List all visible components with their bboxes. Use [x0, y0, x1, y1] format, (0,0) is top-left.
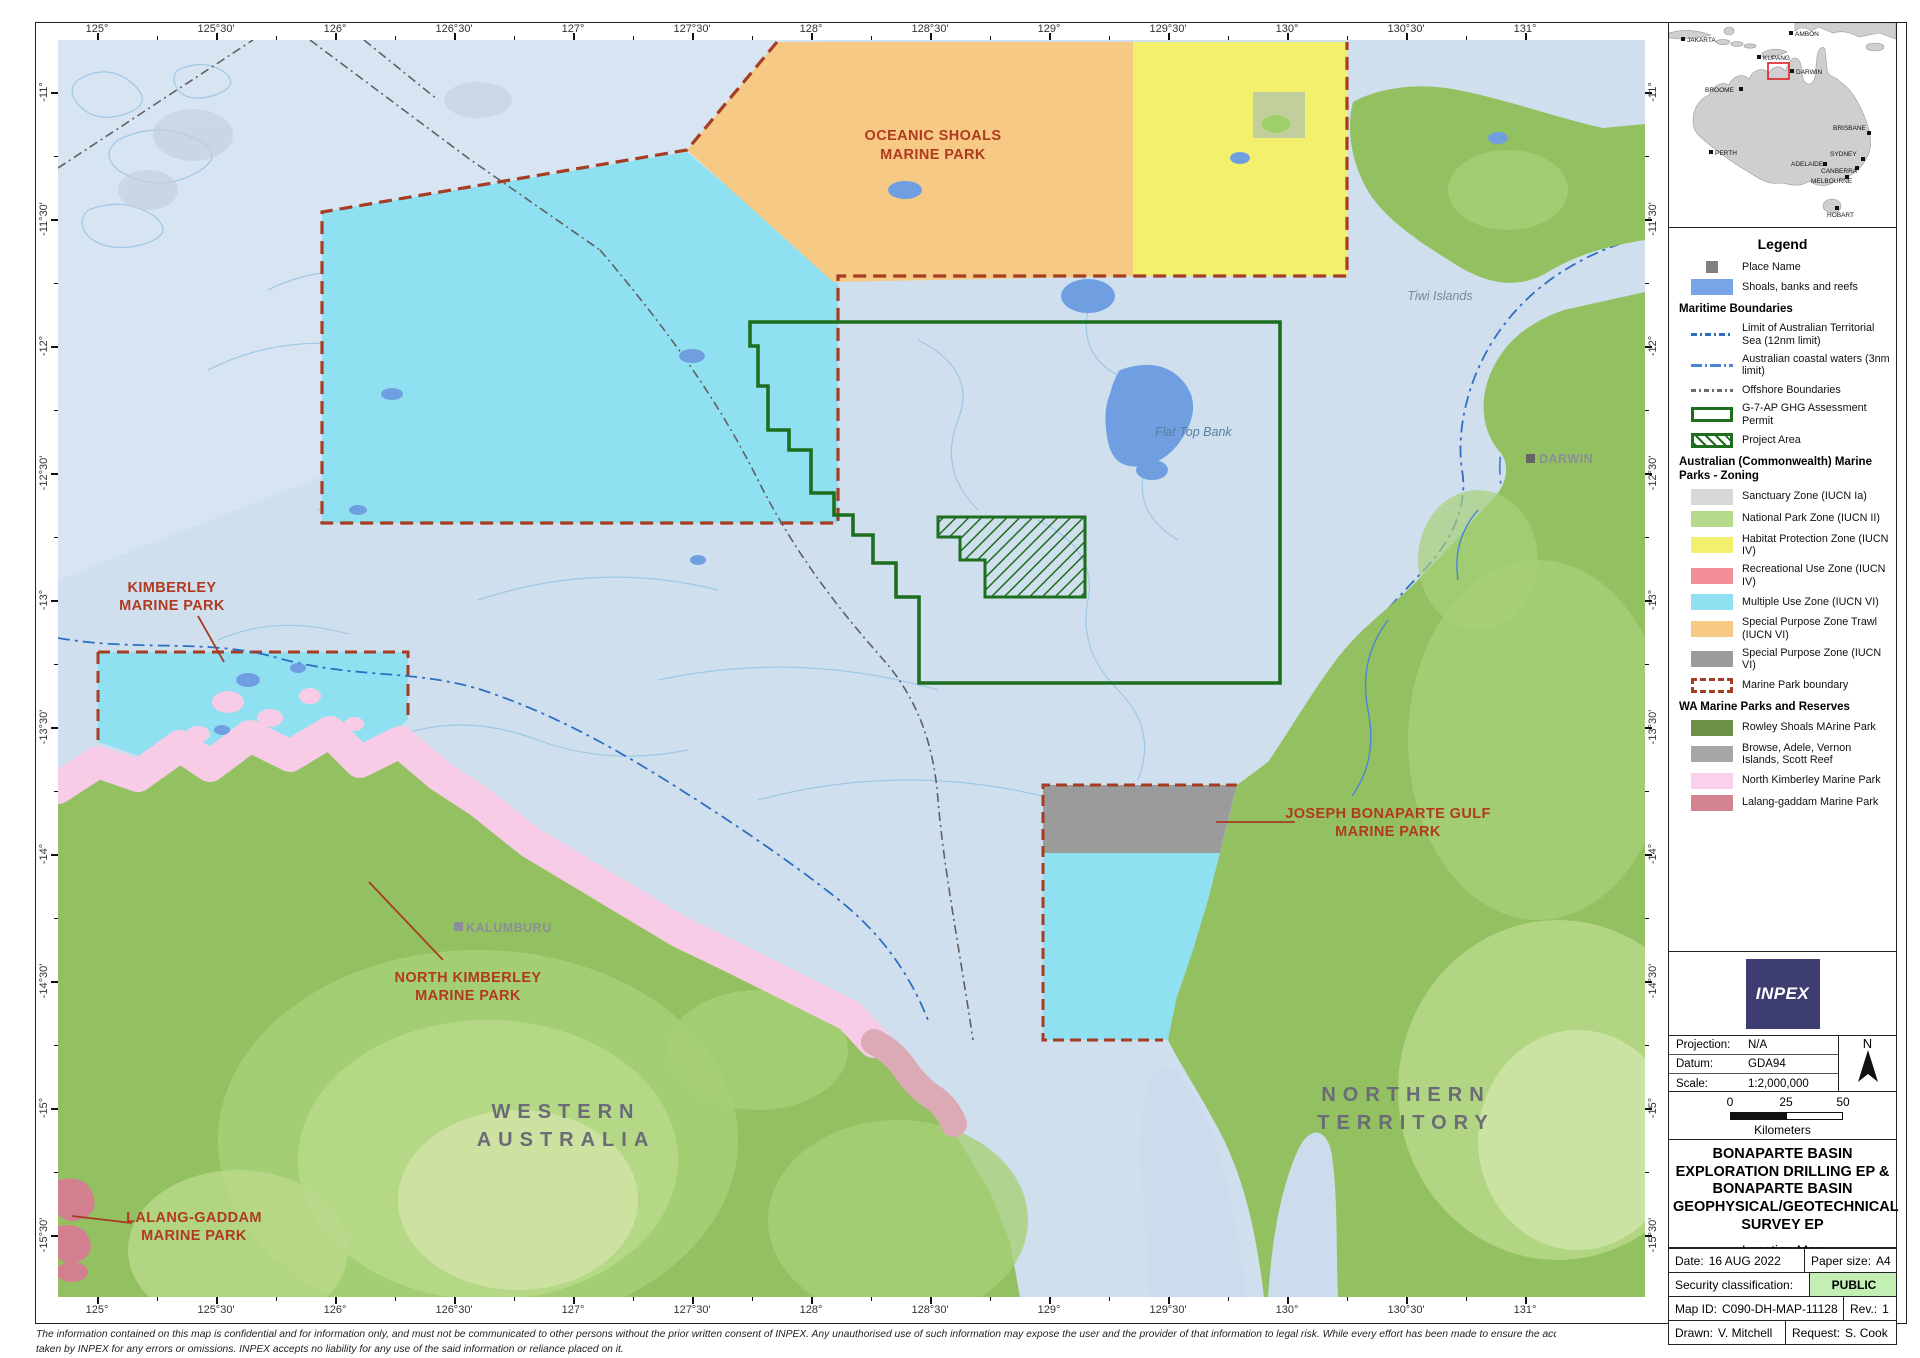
svg-text:BROOME: BROOME [1705, 87, 1735, 94]
legend-swatch-line [1691, 364, 1733, 367]
legend-item: Special Purpose Zone Trawl (IUCN VI) [1669, 613, 1896, 644]
legend-swatch-national-park [1691, 511, 1733, 527]
oceanic-shoals-label: OCEANIC SHOALS [865, 128, 1002, 144]
legend-swatch-lg [1691, 795, 1733, 811]
scalebar-25: 25 [1779, 1095, 1792, 1109]
svg-text:AMBON: AMBON [1795, 31, 1819, 38]
map-sheet: OCEANIC SHOALS MARINE PARK KIMBERLEY MAR… [0, 0, 1920, 1358]
legend-item: Shoals, banks and reefs [1669, 276, 1896, 298]
darwin-marker [1526, 454, 1535, 463]
svg-text:CANBERRA: CANBERRA [1821, 168, 1858, 175]
legend-item: Special Purpose Zone (IUCN VI) [1669, 644, 1896, 675]
legend-item: Multiple Use Zone (IUCN VI) [1669, 591, 1896, 613]
kimberley-label: KIMBERLEY [128, 580, 217, 596]
drawn-row: Drawn:V. Mitchell Request:S. Cook [1668, 1320, 1897, 1345]
legend-item-label: Shoals, banks and reefs [1742, 281, 1858, 293]
legend-swatch-permit [1691, 407, 1733, 422]
legend-item-label: Sanctuary Zone (IUCN Ia) [1742, 490, 1867, 502]
svg-text:KUPANG: KUPANG [1763, 55, 1790, 62]
legend-item: North Kimberley Marine Park [1669, 770, 1896, 792]
lalang-gaddam-label: LALANG-GADDAM [126, 1210, 262, 1226]
logo-box: INPEX [1668, 951, 1897, 1036]
legend-swatch-project [1691, 433, 1733, 448]
svg-text:ADELAIDE: ADELAIDE [1791, 161, 1824, 168]
projection-table: Projection: N/A Datum: GDA94 Scale: 1:2,… [1668, 1035, 1897, 1092]
scale-value: 1:2,000,000 [1748, 1078, 1809, 1090]
jbg-special-purpose-zone [1043, 785, 1237, 853]
scalebar-50: 50 [1836, 1095, 1849, 1109]
date-value: 16 AUG 2022 [1709, 1254, 1781, 1268]
svg-text:BRISBANE: BRISBANE [1833, 125, 1867, 132]
legend-swatch-habitat [1691, 537, 1733, 553]
north-label: N [1863, 1037, 1872, 1050]
kalumburu-label: KALUMBURU [466, 921, 552, 935]
date-row: Date:16 AUG 2022 Paper size:A4 [1668, 1248, 1897, 1273]
legend-item: Place Name [1669, 258, 1896, 276]
title-box: BONAPARTE BASIN EXPLORATION DRILLING EP … [1668, 1139, 1897, 1248]
legend-item: Lalang-gaddam Marine Park [1669, 792, 1896, 814]
svg-text:JAKARTA: JAKARTA [1687, 37, 1716, 44]
kalumburu-marker [454, 922, 463, 931]
scalebar-graphic [1730, 1112, 1843, 1120]
legend-item: G-7-AP GHG Assessment Permit [1669, 399, 1896, 430]
rev-value: 1 [1882, 1302, 1889, 1316]
map-title: BONAPARTE BASIN EXPLORATION DRILLING EP … [1669, 1140, 1896, 1234]
legend-swatch-spz [1691, 651, 1733, 667]
national-park-patch [1262, 115, 1290, 133]
datum-row: Datum: GDA94 [1669, 1055, 1838, 1074]
projection-value: N/A [1748, 1039, 1767, 1051]
mapid-label: Map ID: [1675, 1302, 1717, 1316]
legend-swatch-browse [1691, 746, 1733, 762]
request-value: S. Cook [1845, 1326, 1888, 1340]
mapid-value: C090-DH-MAP-11128 [1722, 1302, 1838, 1316]
legend-swatch-nk [1691, 773, 1733, 789]
security-row: Security classification: PUBLIC [1668, 1272, 1897, 1297]
legend-swatch-line [1691, 333, 1733, 336]
legend-swatch-multiple-use [1691, 594, 1733, 610]
main-map[interactable]: OCEANIC SHOALS MARINE PARK KIMBERLEY MAR… [58, 40, 1645, 1297]
legend-item: Browse, Adele, Vernon Islands, Scott Ree… [1669, 739, 1896, 770]
scale-label: Scale: [1669, 1078, 1748, 1090]
legend-items: Place NameShoals, banks and reefsMaritim… [1669, 258, 1896, 814]
legend-swatch-spz-trawl [1691, 621, 1733, 637]
legend-item-label: Limit of Australian Territorial Sea (12n… [1742, 322, 1890, 347]
projection-row: Projection: N/A [1669, 1036, 1838, 1055]
legend-item: Rowley Shoals MArine Park [1669, 717, 1896, 739]
svg-text:HOBART: HOBART [1827, 212, 1854, 219]
scalebar-0: 0 [1727, 1095, 1734, 1109]
legend-item: Habitat Protection Zone (IUCN IV) [1669, 530, 1896, 561]
legend-item-label: Offshore Boundaries [1742, 384, 1841, 396]
nt-label: NORTHERN [1321, 1084, 1490, 1106]
legend-item: Offshore Boundaries [1669, 381, 1896, 399]
north-kimberley-label2: MARINE PARK [415, 988, 521, 1004]
jbg-label: JOSEPH BONAPARTE GULF [1285, 806, 1491, 822]
disclaimer-line2: taken by INPEX for any errors or omissio… [36, 1344, 1556, 1355]
legend-item-label: G-7-AP GHG Assessment Permit [1742, 402, 1890, 427]
security-value: PUBLIC [1809, 1273, 1896, 1296]
mapid-row: Map ID:C090-DH-MAP-11128 Rev.:1 [1668, 1296, 1897, 1321]
svg-text:PERTH: PERTH [1715, 150, 1737, 157]
legend-item: Limit of Australian Territorial Sea (12n… [1669, 319, 1896, 350]
legend-item-label: Special Purpose Zone Trawl (IUCN VI) [1742, 616, 1890, 641]
north-arrow-icon [1855, 1050, 1881, 1084]
legend-item-label: National Park Zone (IUCN II) [1742, 512, 1880, 524]
projection-label: Projection: [1669, 1039, 1748, 1051]
legend-item-label: Australian coastal waters (3nm limit) [1742, 353, 1890, 378]
legend-section-header: Maritime Boundaries [1669, 298, 1896, 319]
legend-swatch-sanctuary [1691, 489, 1733, 505]
legend-item-label: Rowley Shoals MArine Park [1742, 721, 1876, 733]
scale-bar: 0 25 50 Kilometers [1668, 1091, 1897, 1140]
kimberley-label2: MARINE PARK [119, 598, 225, 614]
drawn-label: Drawn: [1675, 1326, 1713, 1340]
legend-item: Recreational Use Zone (IUCN IV) [1669, 560, 1896, 591]
legend-item-label: Project Area [1742, 434, 1801, 446]
inpex-logo: INPEX [1746, 959, 1820, 1029]
legend: Legend Place NameShoals, banks and reefs… [1668, 227, 1897, 952]
nt-label2: TERRITORY [1317, 1112, 1494, 1134]
date-label: Date: [1675, 1254, 1704, 1268]
legend-section-header: WA Marine Parks and Reserves [1669, 696, 1896, 717]
north-arrow: N [1838, 1036, 1896, 1091]
flat-top-bank-label: Flat Top Bank [1155, 425, 1232, 439]
legend-item: National Park Zone (IUCN II) [1669, 508, 1896, 530]
legend-section-header: Australian (Commonwealth) Marine Parks -… [1669, 451, 1896, 486]
svg-text:DARWIN: DARWIN [1796, 69, 1823, 76]
disclaimer-line1: The information contained on this map is… [36, 1329, 1556, 1340]
overview-inset-map[interactable]: JAKARTA AMBON KUPANG DARWIN BROOME PERTH… [1668, 22, 1897, 228]
legend-item: Marine Park boundary [1669, 675, 1896, 696]
legend-swatch-rowley [1691, 720, 1733, 736]
oceanic-shoals-label2: MARINE PARK [880, 147, 986, 163]
legend-swatch-shoals [1691, 279, 1733, 295]
north-kimberley-label: NORTH KIMBERLEY [395, 970, 542, 986]
drawn-value: V. Mitchell [1718, 1326, 1772, 1340]
legend-item-label: Multiple Use Zone (IUCN VI) [1742, 596, 1879, 608]
wa-label: WESTERN [492, 1101, 641, 1123]
svg-text:MELBOURNE: MELBOURNE [1811, 178, 1853, 185]
legend-item-label: North Kimberley Marine Park [1742, 774, 1881, 786]
legend-item-label: Habitat Protection Zone (IUCN IV) [1742, 533, 1890, 558]
datum-value: GDA94 [1748, 1058, 1786, 1070]
legend-item-label: Recreational Use Zone (IUCN IV) [1742, 563, 1890, 588]
rev-label: Rev.: [1850, 1302, 1877, 1316]
legend-item: Sanctuary Zone (IUCN Ia) [1669, 486, 1896, 508]
security-label: Security classification: [1669, 1273, 1809, 1296]
legend-item-label: Lalang-gaddam Marine Park [1742, 796, 1878, 808]
legend-item-label: Browse, Adele, Vernon Islands, Scott Ree… [1742, 742, 1890, 767]
lalang-gaddam-label2: MARINE PARK [141, 1228, 247, 1244]
legend-item-label: Special Purpose Zone (IUCN VI) [1742, 647, 1890, 672]
legend-item-label: Marine Park boundary [1742, 679, 1848, 691]
legend-item: Australian coastal waters (3nm limit) [1669, 350, 1896, 381]
svg-text:SYDNEY: SYDNEY [1830, 151, 1857, 158]
datum-label: Datum: [1669, 1058, 1748, 1070]
darwin-label: DARWIN [1539, 452, 1593, 466]
request-label: Request: [1792, 1326, 1840, 1340]
tiwi-islands-label: Tiwi Islands [1407, 289, 1472, 303]
paper-label: Paper size: [1811, 1254, 1871, 1268]
legend-swatch-mp-boundary [1691, 678, 1733, 693]
wa-label2: AUSTRALIA [477, 1129, 656, 1151]
paper-value: A4 [1876, 1254, 1891, 1268]
legend-swatch-place [1706, 261, 1718, 273]
jbg-label2: MARINE PARK [1335, 824, 1441, 840]
legend-item: Project Area [1669, 430, 1896, 451]
legend-swatch-line [1691, 389, 1733, 392]
legend-swatch-recreational [1691, 568, 1733, 584]
scalebar-unit: Kilometers [1669, 1123, 1896, 1137]
legend-title: Legend [1669, 236, 1896, 252]
legend-item-label: Place Name [1742, 261, 1801, 273]
